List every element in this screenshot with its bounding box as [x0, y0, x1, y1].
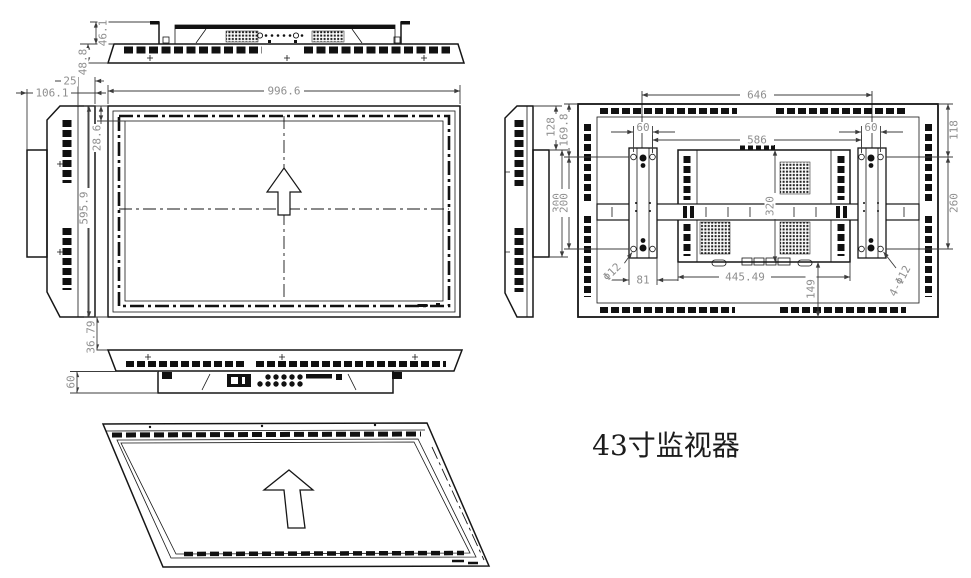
top-view-screw-row	[257, 33, 303, 43]
dim-label-total-depth: 106.1	[35, 87, 68, 100]
dim-label-rear-top-offset: 128	[545, 117, 558, 137]
dim-label-bezel-depth: 25	[63, 75, 76, 88]
bottom-view-foot-left	[162, 372, 172, 379]
bottom-view-slab-outline	[108, 350, 462, 371]
iso-corner-marks	[452, 561, 478, 563]
dim-label-hole-pitch-left: 60	[636, 121, 649, 134]
engineering-drawing-43in-monitor: 46.1 48.8 106.1 25	[0, 0, 971, 578]
isometric-view	[103, 423, 489, 567]
iso-top-vent-dashes	[112, 434, 421, 435]
dim-bezel-depth: 25	[55, 75, 104, 88]
dim-label-mount-span: 646	[747, 89, 767, 102]
bottom-view-av-jacks	[257, 374, 302, 386]
dim-mount-span: 646	[642, 89, 872, 102]
rear-view: 646 60 60 586 169.8	[558, 89, 961, 318]
dim-label-bezel-top: 28.6	[91, 125, 104, 152]
rear-vesa-bracket-left	[629, 148, 657, 258]
dim-label-hook-height: 46.1	[97, 20, 110, 47]
front-view: 996.6 28.6 595.9 36.79	[78, 85, 461, 357]
bottom-view: 60	[65, 350, 463, 393]
dim-label-vesa-span: 586	[747, 134, 767, 147]
dim-label-hole-pitch-vertical: 200	[558, 193, 571, 213]
dim-label-right-hole-span: 260	[948, 193, 961, 213]
dim-label-top-to-hole: 169.8	[558, 113, 571, 146]
drawing-title: 43寸监视器	[592, 429, 740, 462]
side-view-wall-bracket	[27, 150, 47, 257]
rear-box-vent-grid-1	[780, 162, 810, 194]
bottom-view-housing-slants	[202, 374, 356, 390]
dim-label-right-top-offset: 118	[948, 120, 961, 140]
rear-side-wall-bracket	[533, 150, 549, 257]
dim-label-top-depth: 48.8	[77, 49, 90, 76]
dim-label-box-width: 445.49	[725, 271, 765, 284]
top-view-housing-top-edge	[175, 25, 395, 29]
side-view-screw-marks	[57, 161, 63, 255]
dim-label-front-width: 996.6	[267, 85, 300, 98]
bottom-view-connector-panel	[227, 374, 342, 387]
dim-front-width: 996.6	[108, 85, 460, 105]
top-view-vent-grid-left	[226, 31, 258, 42]
dim-gap-below: 36.79	[85, 317, 109, 356]
rear-box-vent-grid-2	[700, 222, 730, 254]
bottom-view-usb-port	[336, 374, 342, 380]
rear-box-vent-grid-3	[780, 222, 810, 254]
dim-housing-depth: 60	[65, 372, 159, 394]
top-view-vent-grid-right	[312, 31, 344, 42]
bottom-view-hdmi-port	[306, 374, 332, 379]
top-view: 46.1 48.8	[77, 19, 465, 76]
dim-label-box-to-bottom: 149	[805, 279, 818, 299]
dim-label-gap-below: 36.79	[85, 320, 98, 353]
top-view-center-marks	[147, 55, 427, 61]
front-view-ir-and-led	[417, 303, 440, 307]
rear-vesa-bracket-right	[858, 148, 886, 258]
drawing-canvas: 46.1 48.8 106.1 25	[0, 0, 971, 578]
dim-label-housing-depth: 60	[65, 375, 78, 388]
iso-up-arrow	[264, 470, 313, 528]
bottom-view-foot-right	[392, 372, 402, 379]
rear-side-outline	[505, 106, 533, 317]
dim-label-box-height: 320	[764, 196, 777, 216]
iso-top-edge-line	[106, 430, 425, 431]
iso-side-centerline	[432, 447, 484, 560]
bottom-view-center-marks	[145, 354, 418, 360]
side-view-left: 106.1 25	[16, 75, 106, 318]
dim-label-front-height: 595.9	[78, 191, 91, 224]
up-arrow-orientation-mark	[267, 168, 301, 215]
top-view-hanging-hooks	[150, 21, 410, 44]
dim-label-hole-pitch-right: 60	[864, 121, 877, 134]
dim-label-bracket-width: 81	[636, 274, 649, 287]
